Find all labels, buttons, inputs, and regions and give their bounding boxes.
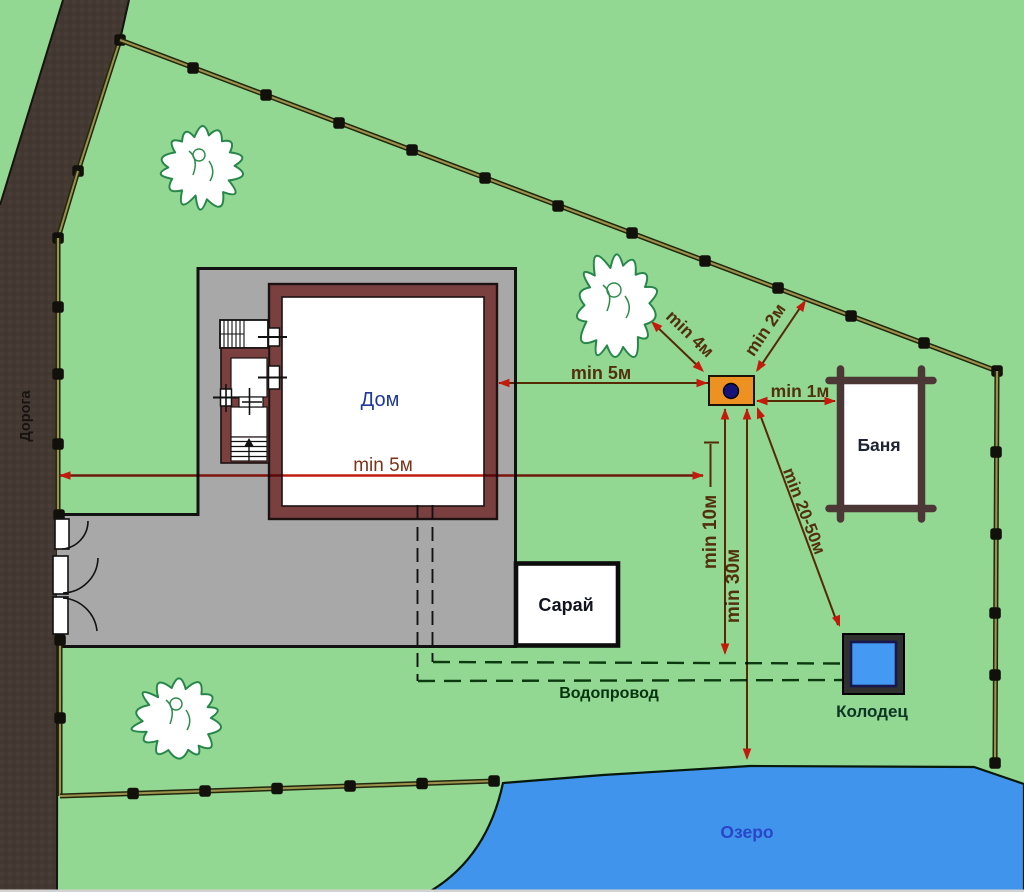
svg-text:min 10м: min 10м [700,495,721,569]
svg-text:Колодец: Колодец [836,702,908,721]
svg-text:min 1м: min 1м [771,381,830,401]
svg-text:Дом: Дом [361,389,400,411]
svg-text:min 5м: min 5м [353,455,413,476]
svg-text:Сарай: Сарай [538,595,593,615]
svg-text:min 5м: min 5м [571,363,631,383]
svg-text:Баня: Баня [857,435,900,455]
svg-text:min 30м: min 30м [723,549,744,623]
svg-text:Водопровод: Водопровод [559,685,659,702]
svg-text:Дорога: Дорога [18,389,34,441]
svg-text:Озеро: Озеро [720,822,773,842]
